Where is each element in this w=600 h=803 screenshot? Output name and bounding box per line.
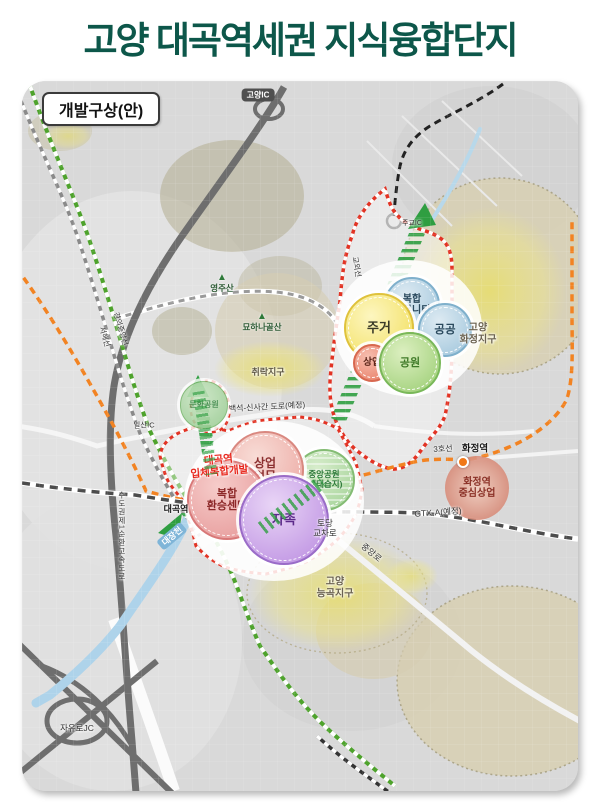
page-title: 고양 대곡역세권 지식융합단지 [0, 0, 600, 64]
hwajeong-station-dot [457, 456, 469, 468]
jayuro-jc-label: 자유로JC [60, 724, 94, 734]
goyang-ic-label: 고양IC [242, 89, 275, 102]
chwirak-district-label: 취락지구 [251, 367, 284, 377]
myohanagolsan-mountain: ▲ 묘하나골산 [242, 313, 281, 333]
legend-title-box: 개발구상(안) [42, 92, 160, 126]
jugyo-ic-label: 주교IC [402, 220, 422, 228]
basemap-graphics [22, 81, 578, 791]
development-plan-map: 개발구상(안) 고양IC 일산IC 주교IC 자유로JC ▲ 영주산 ▲ 묘하나… [22, 81, 578, 791]
beltway-label: 수도권제1순환고속도로 [117, 491, 126, 581]
bubble-label: 주거 [367, 321, 391, 336]
daegok-development-note: 대곡역 입체복합개발 [189, 451, 249, 480]
neunggok-district-label: 고양 능곡지구 [317, 577, 354, 600]
bubble-label: 공원 [400, 357, 420, 369]
hwajeong-district-label: 고양 화정지구 [460, 323, 497, 346]
todang-junction-label: 토당 교차로 [313, 519, 336, 539]
mountain-icon: ▲ [210, 274, 233, 282]
bubble-park: 공원 [379, 332, 441, 394]
myohanagolsan-label: 묘하나골산 [242, 322, 281, 332]
bubble-label: 공공 [434, 324, 455, 337]
mountain-icon: ▲ [242, 313, 281, 321]
line3-label: 3호선 [433, 444, 453, 454]
yeongjusan-label: 영주산 [210, 283, 233, 293]
daegok-station-label: 대곡역 [164, 504, 189, 514]
yeongjusan-mountain: ▲ 영주산 [210, 274, 233, 294]
hwajeong-station-label: 화정역 [462, 445, 488, 456]
ilsan-ic-label: 일산IC [133, 422, 154, 431]
bubble-label: 화정역 중심상업 [459, 477, 496, 499]
